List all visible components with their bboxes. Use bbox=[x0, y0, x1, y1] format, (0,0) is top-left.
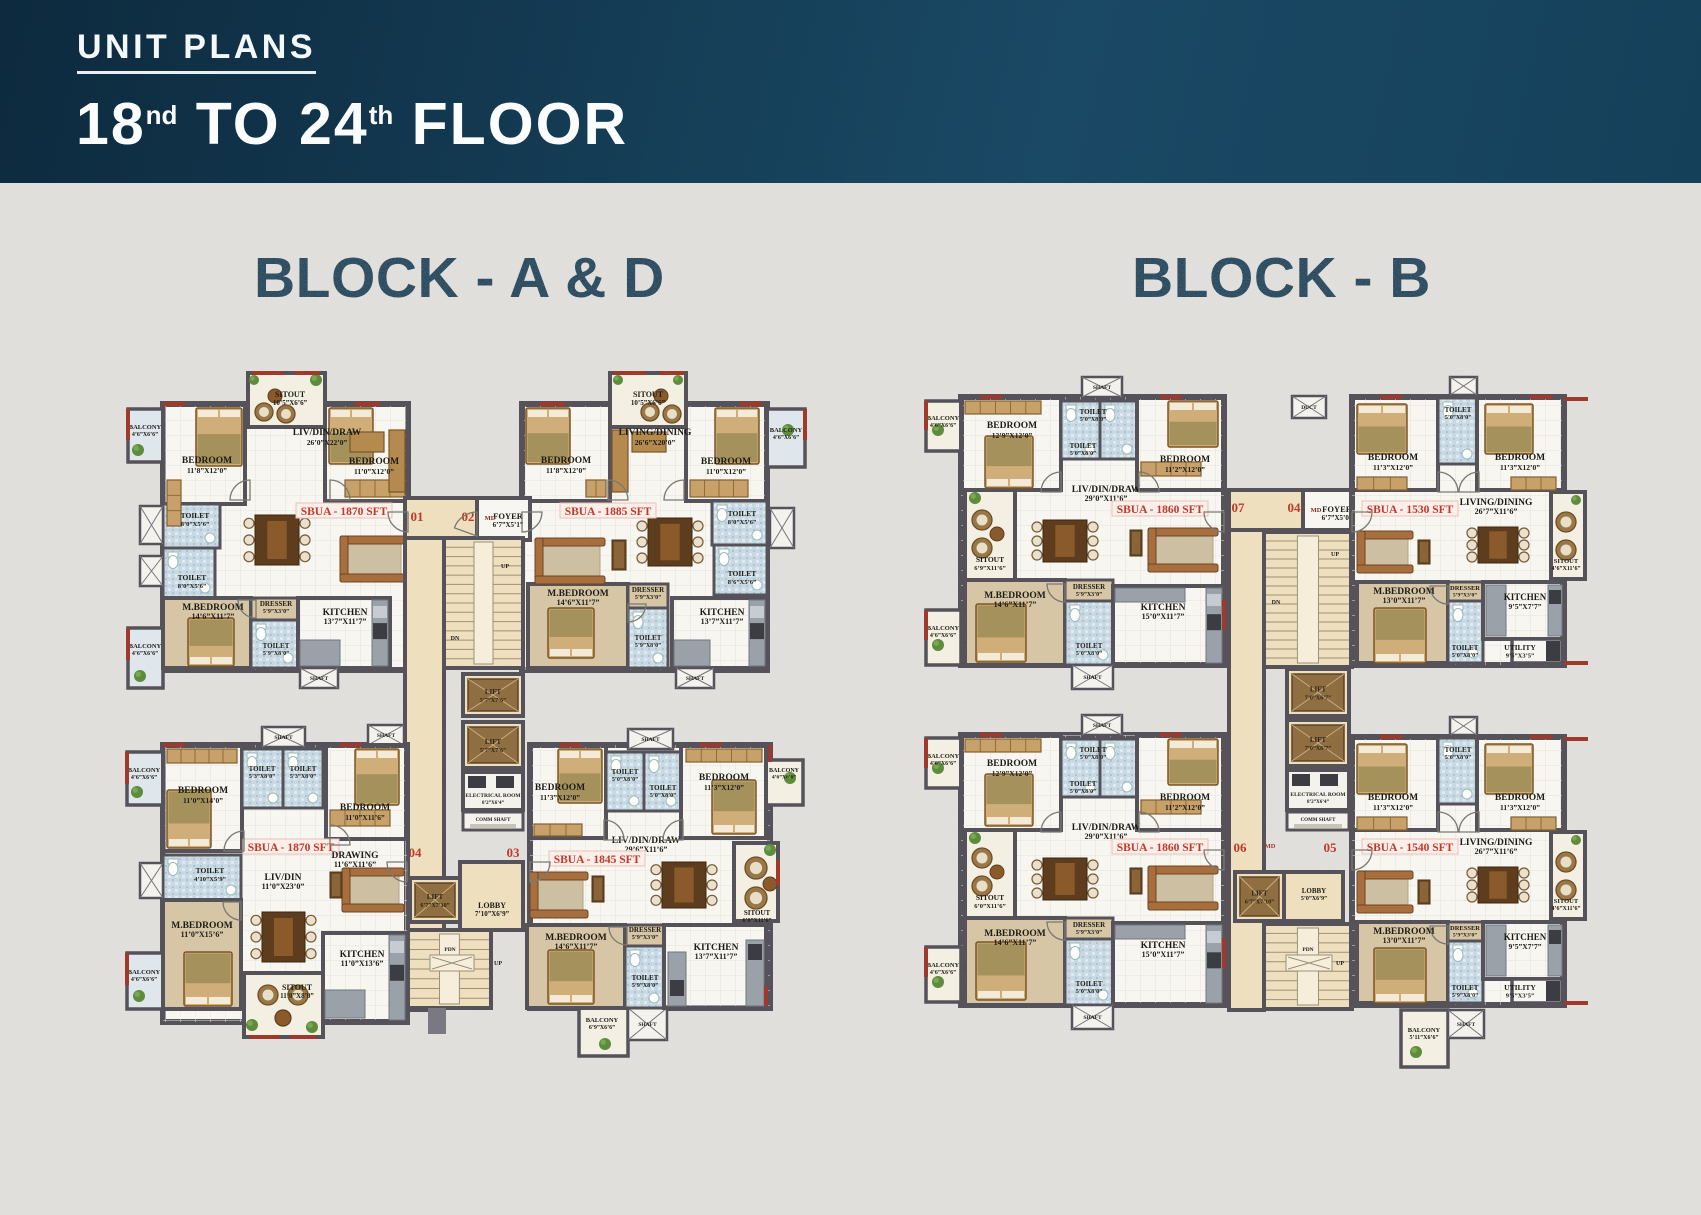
svg-text:TOILET: TOILET bbox=[728, 509, 757, 518]
svg-text:LIFT: LIFT bbox=[1251, 890, 1268, 898]
svg-text:TOILET: TOILET bbox=[1076, 642, 1103, 650]
svg-text:UP: UP bbox=[494, 961, 502, 967]
svg-text:5’9”X3’0”: 5’9”X3’0” bbox=[632, 935, 658, 941]
svg-text:5’0”X8’0”: 5’0”X8’0” bbox=[1070, 789, 1096, 795]
svg-text:SITOUT: SITOUT bbox=[1554, 898, 1579, 905]
svg-text:BEDROOM: BEDROOM bbox=[178, 786, 228, 796]
svg-text:TOILET: TOILET bbox=[249, 765, 276, 773]
svg-text:5’0”X8’0”: 5’0”X8’0” bbox=[1452, 653, 1478, 659]
svg-text:TOILET: TOILET bbox=[178, 573, 207, 582]
svg-text:14’6”X11’7”: 14’6”X11’7” bbox=[555, 942, 598, 951]
svg-text:BEDROOM: BEDROOM bbox=[1495, 453, 1545, 463]
svg-text:9’5”X3’5”: 9’5”X3’5” bbox=[1506, 653, 1535, 660]
svg-text:6’7”X5’0”: 6’7”X5’0” bbox=[1322, 514, 1353, 522]
svg-text:11’3”X12’0”: 11’3”X12’0” bbox=[1500, 803, 1540, 812]
svg-text:5’9”X3’0”: 5’9”X3’0” bbox=[1453, 593, 1477, 599]
svg-text:LIVING/DINING: LIVING/DINING bbox=[619, 428, 692, 438]
svg-text:6’7”X7’10”: 6’7”X7’10” bbox=[420, 903, 449, 909]
svg-text:BALCONY: BALCONY bbox=[1408, 1027, 1441, 1034]
svg-text:DRESSER: DRESSER bbox=[1073, 921, 1106, 929]
svg-text:BALCONY: BALCONY bbox=[769, 768, 800, 774]
svg-text:5’0”X8’0”: 5’0”X8’0” bbox=[1080, 417, 1106, 423]
svg-text:6’9”X11’6”: 6’9”X11’6” bbox=[974, 565, 1005, 572]
svg-text:SHAFT: SHAFT bbox=[1083, 675, 1102, 681]
svg-text:ELECTRICAL ROOM: ELECTRICAL ROOM bbox=[465, 793, 521, 799]
svg-text:BEDROOM: BEDROOM bbox=[1160, 793, 1210, 803]
svg-text:5’0”X8’0”: 5’0”X8’0” bbox=[1445, 755, 1471, 761]
svg-text:BALCONY: BALCONY bbox=[927, 415, 960, 422]
svg-text:DRESSER: DRESSER bbox=[1073, 583, 1106, 591]
svg-text:26’0”X22’0”: 26’0”X22’0” bbox=[307, 438, 348, 447]
svg-text:11’0”X8’0”: 11’0”X8’0” bbox=[280, 992, 314, 1000]
svg-text:BEDROOM: BEDROOM bbox=[1368, 793, 1418, 803]
svg-text:4’6”X6’6”: 4’6”X6’6” bbox=[132, 432, 158, 438]
svg-text:5’0”X8’0”: 5’0”X8’0” bbox=[1080, 755, 1106, 761]
svg-text:11’3”X12’0”: 11’3”X12’0” bbox=[704, 783, 744, 792]
svg-text:ELECTRICAL ROOM: ELECTRICAL ROOM bbox=[1290, 792, 1346, 798]
svg-text:5’0”X8’0”: 5’0”X8’0” bbox=[1076, 989, 1102, 995]
svg-text:BEDROOM: BEDROOM bbox=[987, 759, 1037, 769]
svg-text:PDN: PDN bbox=[1302, 947, 1313, 953]
svg-text:DRESSER: DRESSER bbox=[629, 926, 662, 934]
svg-text:COMM SHAFT: COMM SHAFT bbox=[1301, 818, 1337, 823]
svg-text:12’9”X12’0”: 12’9”X12’0” bbox=[992, 769, 1033, 778]
svg-text:26’7”X11’6”: 26’7”X11’6” bbox=[1475, 507, 1518, 516]
svg-text:4’6”X6’6”: 4’6”X6’6” bbox=[131, 775, 157, 781]
svg-text:8’2”X6’4”: 8’2”X6’4” bbox=[482, 801, 504, 806]
svg-text:SBUA - 1530 SFT: SBUA - 1530 SFT bbox=[1367, 504, 1454, 516]
svg-text:DN: DN bbox=[451, 636, 460, 642]
svg-text:BEDROOM: BEDROOM bbox=[1160, 455, 1210, 465]
svg-text:14’6”X11’7”: 14’6”X11’7” bbox=[994, 600, 1037, 609]
svg-text:SHAFT: SHAFT bbox=[1093, 723, 1112, 729]
svg-text:11’3”X12’0”: 11’3”X12’0” bbox=[1373, 803, 1413, 812]
svg-text:TOILET: TOILET bbox=[181, 511, 210, 520]
svg-text:UTILITY: UTILITY bbox=[1504, 983, 1536, 992]
svg-text:10’5”X6’6”: 10’5”X6’6” bbox=[273, 399, 308, 407]
svg-text:SBUA - 1870 SFT: SBUA - 1870 SFT bbox=[248, 842, 335, 854]
svg-text:BALCONY: BALCONY bbox=[128, 969, 161, 976]
svg-text:LOBBY: LOBBY bbox=[478, 901, 506, 910]
svg-text:SITOUT: SITOUT bbox=[744, 909, 771, 917]
svg-text:BEDROOM: BEDROOM bbox=[541, 456, 591, 466]
svg-text:TOILET: TOILET bbox=[1070, 442, 1097, 450]
svg-text:7’0”X6’7”: 7’0”X6’7” bbox=[1305, 746, 1331, 752]
svg-text:DN: DN bbox=[1272, 600, 1281, 606]
svg-text:4’6”X6’6”: 4’6”X6’6” bbox=[131, 977, 157, 983]
svg-text:11’0”X14’0”: 11’0”X14’0” bbox=[183, 796, 223, 805]
svg-text:KITCHEN: KITCHEN bbox=[1504, 932, 1547, 942]
svg-text:4’6”X6’6”: 4’6”X6’6” bbox=[930, 423, 956, 429]
svg-text:4’6”X6’6”: 4’6”X6’6” bbox=[930, 970, 956, 976]
svg-text:6’0”X11’6”: 6’0”X11’6” bbox=[974, 903, 1005, 910]
svg-text:DRESSER: DRESSER bbox=[1450, 585, 1480, 592]
svg-text:SHAFT: SHAFT bbox=[310, 676, 329, 682]
svg-text:5’3”X8’0”: 5’3”X8’0” bbox=[290, 774, 316, 780]
svg-text:MD: MD bbox=[485, 515, 496, 522]
svg-text:7’10”X6’9”: 7’10”X6’9” bbox=[475, 910, 510, 918]
svg-text:FOYER: FOYER bbox=[493, 511, 524, 521]
svg-text:11’8”X12’0”: 11’8”X12’0” bbox=[546, 466, 586, 475]
svg-text:5’7”X7’6”: 5’7”X7’6” bbox=[480, 748, 506, 754]
svg-text:11’0”X13’6”: 11’0”X13’6” bbox=[341, 959, 384, 968]
svg-text:5’0”X8’0”: 5’0”X8’0” bbox=[1076, 651, 1102, 657]
svg-text:4’6”X6’6”: 4’6”X6’6” bbox=[930, 633, 956, 639]
svg-text:BALCONY: BALCONY bbox=[927, 962, 960, 969]
svg-text:TOILET: TOILET bbox=[1080, 408, 1107, 416]
svg-text:5’9”X3’0”: 5’9”X3’0” bbox=[1076, 930, 1102, 936]
svg-text:BALCONY: BALCONY bbox=[128, 767, 161, 774]
svg-text:TOILET: TOILET bbox=[1445, 406, 1472, 414]
svg-text:15’0”X11’7”: 15’0”X11’7” bbox=[1142, 612, 1185, 621]
svg-text:LIV/DIN/DRAW: LIV/DIN/DRAW bbox=[293, 428, 362, 438]
svg-text:03: 03 bbox=[507, 845, 521, 860]
svg-text:LIFT: LIFT bbox=[485, 738, 502, 746]
svg-text:14’6”X11’7”: 14’6”X11’7” bbox=[557, 598, 600, 607]
svg-text:9’5”X7’7”: 9’5”X7’7” bbox=[1509, 602, 1542, 611]
svg-text:KITCHEN: KITCHEN bbox=[1504, 592, 1547, 602]
svg-text:4’6”X6’6”: 4’6”X6’6” bbox=[132, 651, 158, 657]
svg-text:11’0”X12’0”: 11’0”X12’0” bbox=[706, 467, 746, 476]
svg-text:5’9”X8’0”: 5’9”X8’0” bbox=[635, 643, 661, 649]
svg-text:SHAFT: SHAFT bbox=[638, 1022, 657, 1028]
svg-text:5’3”X8’0”: 5’3”X8’0” bbox=[249, 774, 275, 780]
svg-text:BALCONY: BALCONY bbox=[129, 643, 162, 650]
svg-text:5’9”X8’0”: 5’9”X8’0” bbox=[632, 983, 658, 989]
svg-text:TOILET: TOILET bbox=[196, 866, 225, 875]
svg-text:SITOUT: SITOUT bbox=[976, 893, 1004, 902]
svg-text:01: 01 bbox=[411, 509, 424, 524]
svg-text:6’0”X11’6”: 6’0”X11’6” bbox=[743, 918, 772, 924]
svg-text:SBUA - 1540 SFT: SBUA - 1540 SFT bbox=[1367, 842, 1454, 854]
svg-text:14’6”X11’7”: 14’6”X11’7” bbox=[994, 938, 1037, 947]
svg-text:5’0”X8’0”: 5’0”X8’0” bbox=[612, 777, 638, 783]
svg-text:DRESSER: DRESSER bbox=[632, 586, 665, 594]
svg-text:BEDROOM: BEDROOM bbox=[182, 456, 232, 466]
svg-text:11’0”X11’6”: 11’0”X11’6” bbox=[345, 813, 385, 822]
svg-text:13’7”X11’7”: 13’7”X11’7” bbox=[324, 617, 367, 626]
svg-text:11’6”X11’6”: 11’6”X11’6” bbox=[334, 860, 376, 869]
svg-text:05: 05 bbox=[1324, 840, 1338, 855]
svg-text:TOILET: TOILET bbox=[1445, 746, 1472, 754]
svg-text:5’0”X6’9”: 5’0”X6’9” bbox=[1301, 896, 1327, 902]
svg-text:8’0”X5’6”: 8’0”X5’6” bbox=[178, 583, 207, 590]
svg-text:SBUA - 1885 SFT: SBUA - 1885 SFT bbox=[565, 506, 652, 518]
svg-text:5’0”X8’0”: 5’0”X8’0” bbox=[650, 793, 676, 799]
svg-text:SITOUT: SITOUT bbox=[282, 983, 313, 992]
svg-text:DRESSER: DRESSER bbox=[260, 600, 293, 608]
svg-text:4’6”X6’6”: 4’6”X6’6” bbox=[772, 775, 796, 781]
svg-text:DRESSER: DRESSER bbox=[1450, 925, 1480, 932]
svg-text:BALCONY: BALCONY bbox=[586, 1017, 619, 1024]
svg-text:8’0”X5’6”: 8’0”X5’6” bbox=[728, 519, 757, 526]
svg-text:4’10”X5’9”: 4’10”X5’9” bbox=[194, 876, 226, 883]
svg-text:9’5”X3’5”: 9’5”X3’5” bbox=[1506, 993, 1535, 1000]
svg-text:11’3”X12’0”: 11’3”X12’0” bbox=[1500, 463, 1540, 472]
svg-text:BALCONY: BALCONY bbox=[927, 753, 960, 760]
svg-text:SITOUT: SITOUT bbox=[976, 555, 1004, 564]
svg-text:BALCONY: BALCONY bbox=[129, 424, 162, 431]
svg-text:5’9”X8’0”: 5’9”X8’0” bbox=[263, 651, 289, 657]
svg-text:BEDROOM: BEDROOM bbox=[1368, 453, 1418, 463]
svg-text:SHAFT: SHAFT bbox=[377, 733, 396, 739]
svg-text:PDN: PDN bbox=[444, 947, 455, 953]
svg-text:4’6”X11’6”: 4’6”X11’6” bbox=[1552, 566, 1581, 572]
svg-text:8’2”X6’4”: 8’2”X6’4” bbox=[1307, 800, 1329, 805]
svg-text:11’0”X12’0”: 11’0”X12’0” bbox=[354, 467, 394, 476]
svg-text:26’7”X11’6”: 26’7”X11’6” bbox=[1475, 847, 1518, 856]
svg-text:SITOUT: SITOUT bbox=[633, 390, 664, 399]
svg-text:5’9”X3’0”: 5’9”X3’0” bbox=[1076, 592, 1102, 598]
svg-text:TOILET: TOILET bbox=[1452, 644, 1479, 652]
svg-text:11’8”X12’0”: 11’8”X12’0” bbox=[187, 466, 227, 475]
svg-text:5’9”X8’0”: 5’9”X8’0” bbox=[1452, 993, 1478, 999]
svg-text:07: 07 bbox=[1232, 500, 1246, 515]
svg-text:TOILET: TOILET bbox=[1076, 980, 1103, 988]
svg-text:LIFT: LIFT bbox=[1310, 686, 1327, 694]
svg-text:15’0”X11’7”: 15’0”X11’7” bbox=[1142, 950, 1185, 959]
svg-text:12’9”X12’0”: 12’9”X12’0” bbox=[992, 431, 1033, 440]
svg-text:6’7”X5’1”: 6’7”X5’1” bbox=[493, 521, 524, 529]
svg-text:13’7”X11’7”: 13’7”X11’7” bbox=[701, 617, 744, 626]
svg-text:9’5”X7’7”: 9’5”X7’7” bbox=[1509, 942, 1542, 951]
svg-text:SHAFT: SHAFT bbox=[641, 737, 660, 743]
svg-text:SBUA - 1860 SFT: SBUA - 1860 SFT bbox=[1117, 504, 1204, 516]
svg-text:26’6”X20’0”: 26’6”X20’0” bbox=[635, 438, 676, 447]
svg-text:13’0”X11’7”: 13’0”X11’7” bbox=[1383, 596, 1426, 605]
svg-text:TOILET: TOILET bbox=[1070, 780, 1097, 788]
svg-text:LIFT: LIFT bbox=[1310, 736, 1327, 744]
svg-text:LOBBY: LOBBY bbox=[1302, 887, 1327, 895]
svg-text:4’6”X6’6”: 4’6”X6’6” bbox=[930, 761, 956, 767]
svg-text:SBUA - 1845 SFT: SBUA - 1845 SFT bbox=[554, 854, 641, 866]
svg-text:BEDROOM: BEDROOM bbox=[1495, 793, 1545, 803]
svg-text:BALCONY: BALCONY bbox=[770, 427, 803, 434]
svg-text:SITOUT: SITOUT bbox=[1554, 558, 1579, 565]
svg-text:COMM SHAFT: COMM SHAFT bbox=[476, 818, 512, 823]
svg-text:8’0”X5’6”: 8’0”X5’6” bbox=[181, 521, 210, 528]
svg-text:TOILET: TOILET bbox=[635, 634, 662, 642]
svg-text:04: 04 bbox=[1288, 500, 1302, 515]
svg-text:8’6”X5’6”: 8’6”X5’6” bbox=[728, 579, 757, 586]
svg-text:SBUA - 1870 SFT: SBUA - 1870 SFT bbox=[301, 506, 388, 518]
svg-text:5’0”X8’0”: 5’0”X8’0” bbox=[1070, 451, 1096, 457]
svg-text:TOILET: TOILET bbox=[612, 768, 639, 776]
svg-text:BALCONY: BALCONY bbox=[927, 625, 960, 632]
svg-text:04: 04 bbox=[409, 845, 423, 860]
svg-text:SHAFT: SHAFT bbox=[1083, 1015, 1102, 1021]
svg-text:13’7”X11’7”: 13’7”X11’7” bbox=[695, 952, 738, 961]
svg-text:UP: UP bbox=[501, 564, 509, 570]
svg-text:BEDROOM: BEDROOM bbox=[535, 783, 585, 793]
svg-text:11’3”X12’0”: 11’3”X12’0” bbox=[1373, 463, 1413, 472]
svg-text:UTILITY: UTILITY bbox=[1504, 643, 1536, 652]
svg-text:UP: UP bbox=[1336, 961, 1344, 967]
svg-text:BEDROOM: BEDROOM bbox=[701, 457, 751, 467]
svg-text:SHAFT: SHAFT bbox=[274, 735, 293, 741]
svg-text:4’6”X6’6”: 4’6”X6’6” bbox=[773, 435, 799, 441]
svg-text:MD: MD bbox=[1265, 843, 1276, 850]
svg-text:4’6”X11’6”: 4’6”X11’6” bbox=[1552, 906, 1581, 912]
svg-text:5’7”X7’6”: 5’7”X7’6” bbox=[480, 698, 506, 704]
svg-text:11’0”X15’6”: 11’0”X15’6” bbox=[181, 930, 224, 939]
svg-text:SBUA - 1860 SFT: SBUA - 1860 SFT bbox=[1117, 842, 1204, 854]
svg-text:LIFT: LIFT bbox=[485, 688, 502, 696]
svg-text:7’0”X6’7”: 7’0”X6’7” bbox=[1305, 696, 1331, 702]
svg-text:BEDROOM: BEDROOM bbox=[340, 803, 390, 813]
svg-text:SHAFT: SHAFT bbox=[686, 676, 705, 682]
svg-text:TOILET: TOILET bbox=[650, 784, 677, 792]
svg-text:MD: MD bbox=[1311, 507, 1322, 514]
svg-text:SHAFT: SHAFT bbox=[1457, 1022, 1476, 1028]
svg-text:5’9”X3’0”: 5’9”X3’0” bbox=[635, 595, 661, 601]
svg-text:11’3”X12’0”: 11’3”X12’0” bbox=[540, 793, 580, 802]
svg-text:TOILET: TOILET bbox=[632, 974, 659, 982]
svg-text:BEDROOM: BEDROOM bbox=[349, 457, 399, 467]
svg-text:5’11”X6’6”: 5’11”X6’6” bbox=[1410, 1035, 1439, 1041]
svg-text:11’2”X12’0”: 11’2”X12’0” bbox=[1165, 803, 1205, 812]
svg-text:13’0”X11’7”: 13’0”X11’7” bbox=[1383, 936, 1426, 945]
svg-text:SHAFT: SHAFT bbox=[1093, 385, 1112, 391]
svg-text:06: 06 bbox=[1234, 840, 1248, 855]
svg-text:FOYER: FOYER bbox=[1322, 504, 1353, 514]
svg-text:LIFT: LIFT bbox=[427, 893, 444, 901]
svg-text:5’9”X3’0”: 5’9”X3’0” bbox=[1453, 933, 1477, 939]
svg-text:14’6”X11’7”: 14’6”X11’7” bbox=[192, 612, 235, 621]
svg-text:5’0”X8’0”: 5’0”X8’0” bbox=[1445, 415, 1471, 421]
svg-text:11’2”X12’0”: 11’2”X12’0” bbox=[1165, 465, 1205, 474]
svg-text:BEDROOM: BEDROOM bbox=[987, 421, 1037, 431]
svg-text:6’9”X6’6”: 6’9”X6’6” bbox=[589, 1025, 615, 1031]
svg-text:SITOUT: SITOUT bbox=[275, 390, 306, 399]
svg-text:11’0”X23’0”: 11’0”X23’0” bbox=[262, 882, 305, 891]
svg-text:6’7”X7’10”: 6’7”X7’10” bbox=[1245, 900, 1274, 906]
svg-text:10’5”X6’6”: 10’5”X6’6” bbox=[631, 399, 666, 407]
svg-text:UP: UP bbox=[1331, 552, 1339, 558]
svg-text:DUCT: DUCT bbox=[1301, 405, 1317, 411]
svg-text:TOILET: TOILET bbox=[263, 642, 290, 650]
svg-text:TOILET: TOILET bbox=[1452, 984, 1479, 992]
svg-text:TOILET: TOILET bbox=[290, 765, 317, 773]
svg-text:BEDROOM: BEDROOM bbox=[699, 773, 749, 783]
svg-text:5’9”X3’0”: 5’9”X3’0” bbox=[263, 609, 289, 615]
svg-text:TOILET: TOILET bbox=[728, 569, 757, 578]
svg-text:TOILET: TOILET bbox=[1080, 746, 1107, 754]
